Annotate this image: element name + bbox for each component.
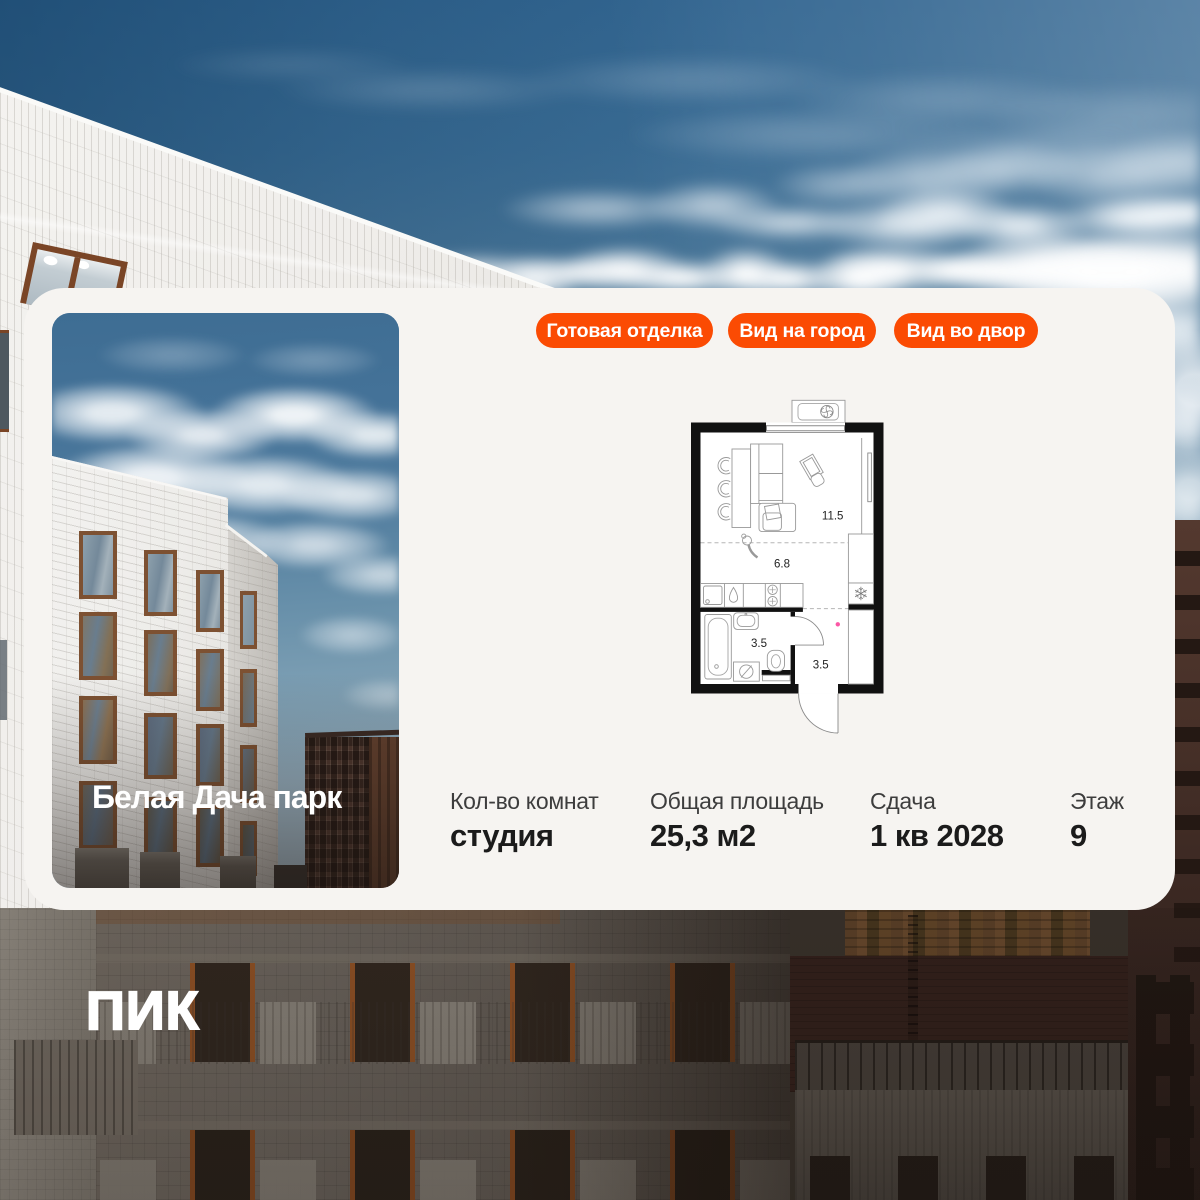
svg-text:11.5: 11.5 — [822, 511, 844, 523]
svg-text:3.5: 3.5 — [751, 638, 767, 650]
svg-text:3.5: 3.5 — [813, 660, 829, 672]
svg-text:6.8: 6.8 — [774, 559, 790, 571]
